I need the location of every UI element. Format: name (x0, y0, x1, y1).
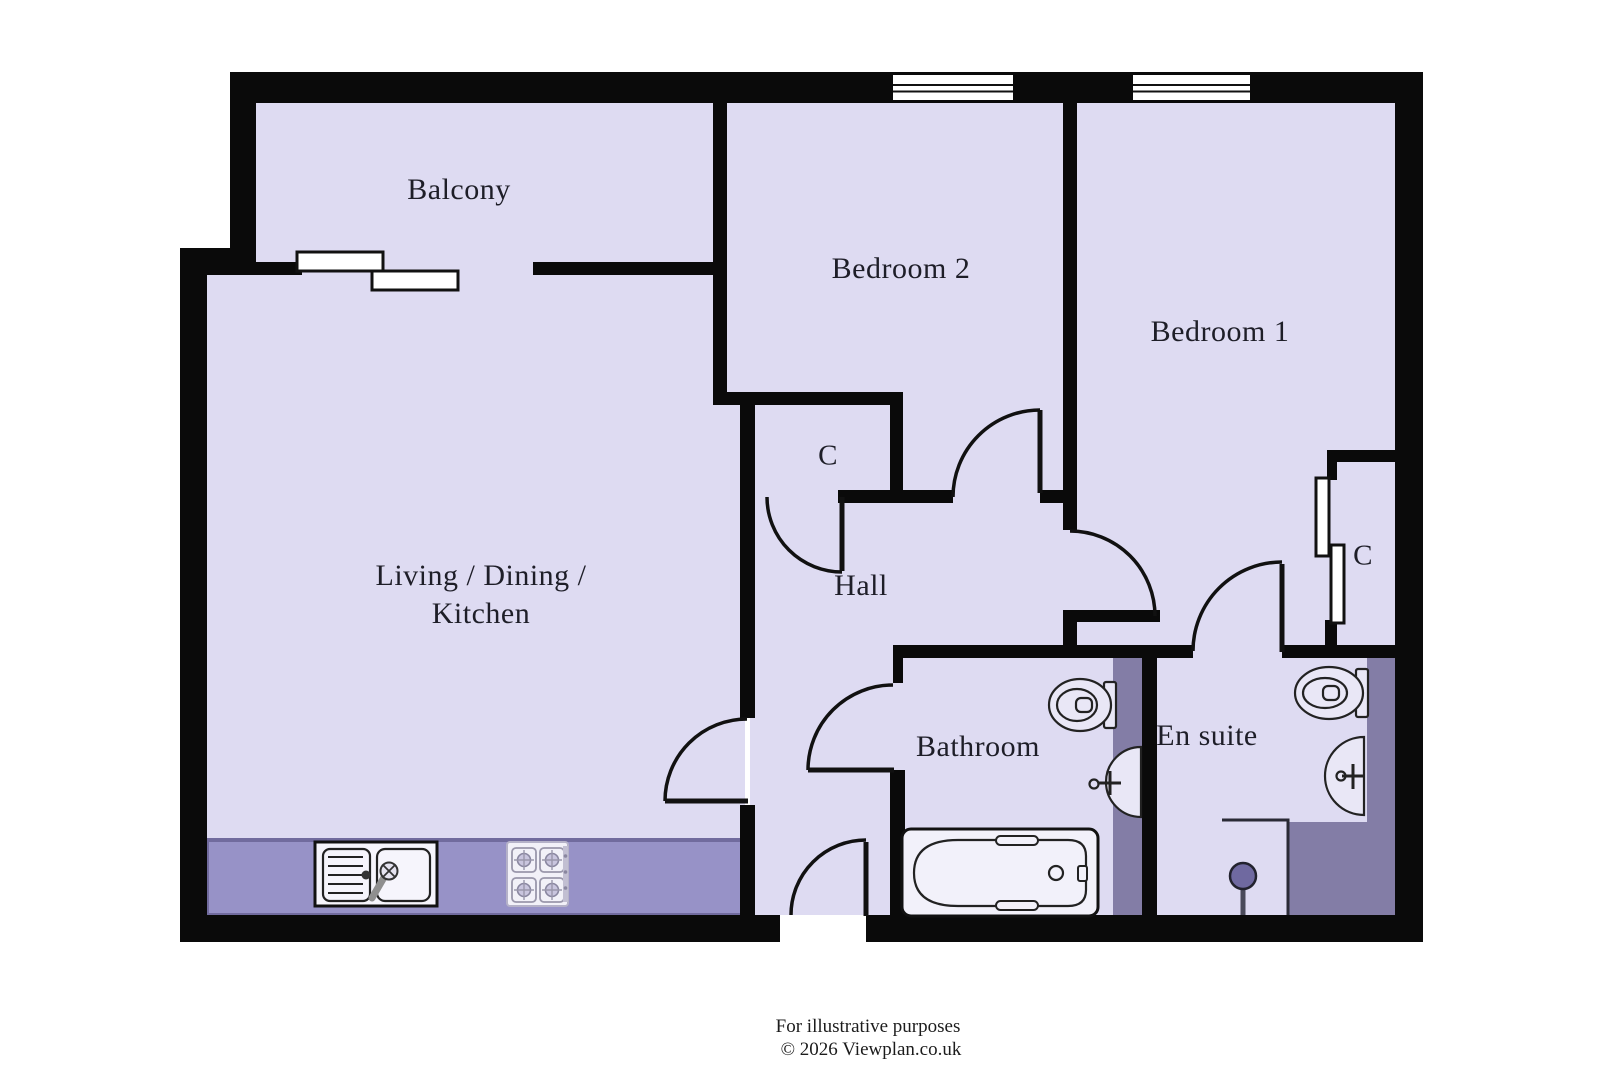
floor-plan-drawing (0, 0, 1620, 1080)
entrance-opening (780, 915, 866, 942)
window-icon (893, 75, 1013, 100)
balcony-label: Balcony (407, 173, 510, 207)
window-icon (1133, 75, 1250, 100)
toilet-icon (1295, 667, 1368, 719)
ensuite-tile-block (1288, 822, 1395, 915)
kitchen-sink-icon (315, 842, 437, 906)
ensuite-label: En suite (1156, 719, 1258, 753)
bathtub-icon (902, 829, 1098, 916)
footer-copyright: © 2026 Viewplan.co.uk (781, 1039, 962, 1061)
bathroom-label: Bathroom (916, 730, 1040, 764)
kitchen-counter (207, 840, 743, 915)
hob-icon (507, 842, 568, 906)
floor-plan-page: Balcony Bedroom 2 Bedroom 1 Living / Din… (0, 0, 1620, 1080)
living-label-line2: Kitchen (432, 597, 530, 631)
bedroom1-closet-label: C (1353, 540, 1373, 573)
living-label-line1: Living / Dining / (376, 559, 587, 593)
bedroom2-label: Bedroom 2 (832, 252, 971, 286)
hall-label: Hall (834, 569, 888, 603)
bedroom1-label: Bedroom 1 (1151, 315, 1290, 349)
hall-closet-label: C (818, 440, 838, 473)
floor-areas (207, 103, 1395, 915)
ensuite-tile-strip (1367, 658, 1395, 822)
footer-disclaimer: For illustrative purposes (776, 1016, 961, 1038)
toilet-icon (1049, 679, 1116, 731)
